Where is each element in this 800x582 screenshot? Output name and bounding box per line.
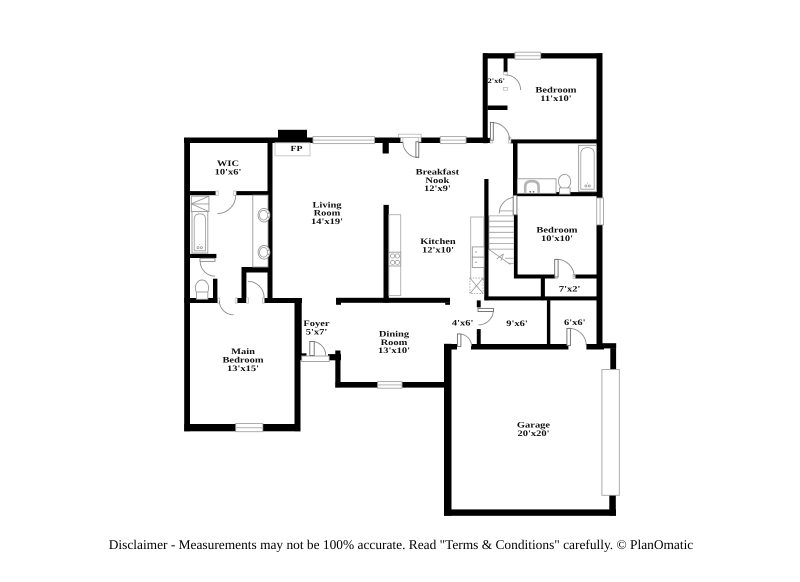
svg-text:14'x19': 14'x19'	[311, 217, 343, 226]
svg-text:13'x15': 13'x15'	[227, 364, 259, 373]
svg-text:20'x20': 20'x20'	[518, 429, 550, 438]
svg-text:7'x2': 7'x2'	[559, 285, 581, 294]
svg-text:12'x9': 12'x9'	[424, 184, 451, 193]
svg-text:FP: FP	[291, 144, 303, 153]
svg-text:Kitchen: Kitchen	[420, 237, 456, 246]
svg-text:10'x10': 10'x10'	[541, 234, 573, 243]
svg-text:4'x6': 4'x6'	[452, 319, 474, 328]
svg-text:5'x7': 5'x7'	[306, 327, 328, 336]
svg-text:Disclaimer - Measurements may: Disclaimer - Measurements may not be 100…	[109, 537, 694, 552]
svg-text:6'x6': 6'x6'	[564, 318, 586, 327]
svg-text:12'x10': 12'x10'	[422, 246, 454, 255]
svg-text:2'x6': 2'x6'	[488, 78, 506, 85]
svg-text:9'x6': 9'x6'	[506, 319, 528, 328]
svg-text:11'x10': 11'x10'	[540, 94, 571, 103]
svg-text:13'x10': 13'x10'	[378, 346, 410, 355]
svg-text:10'x6': 10'x6'	[215, 167, 242, 176]
